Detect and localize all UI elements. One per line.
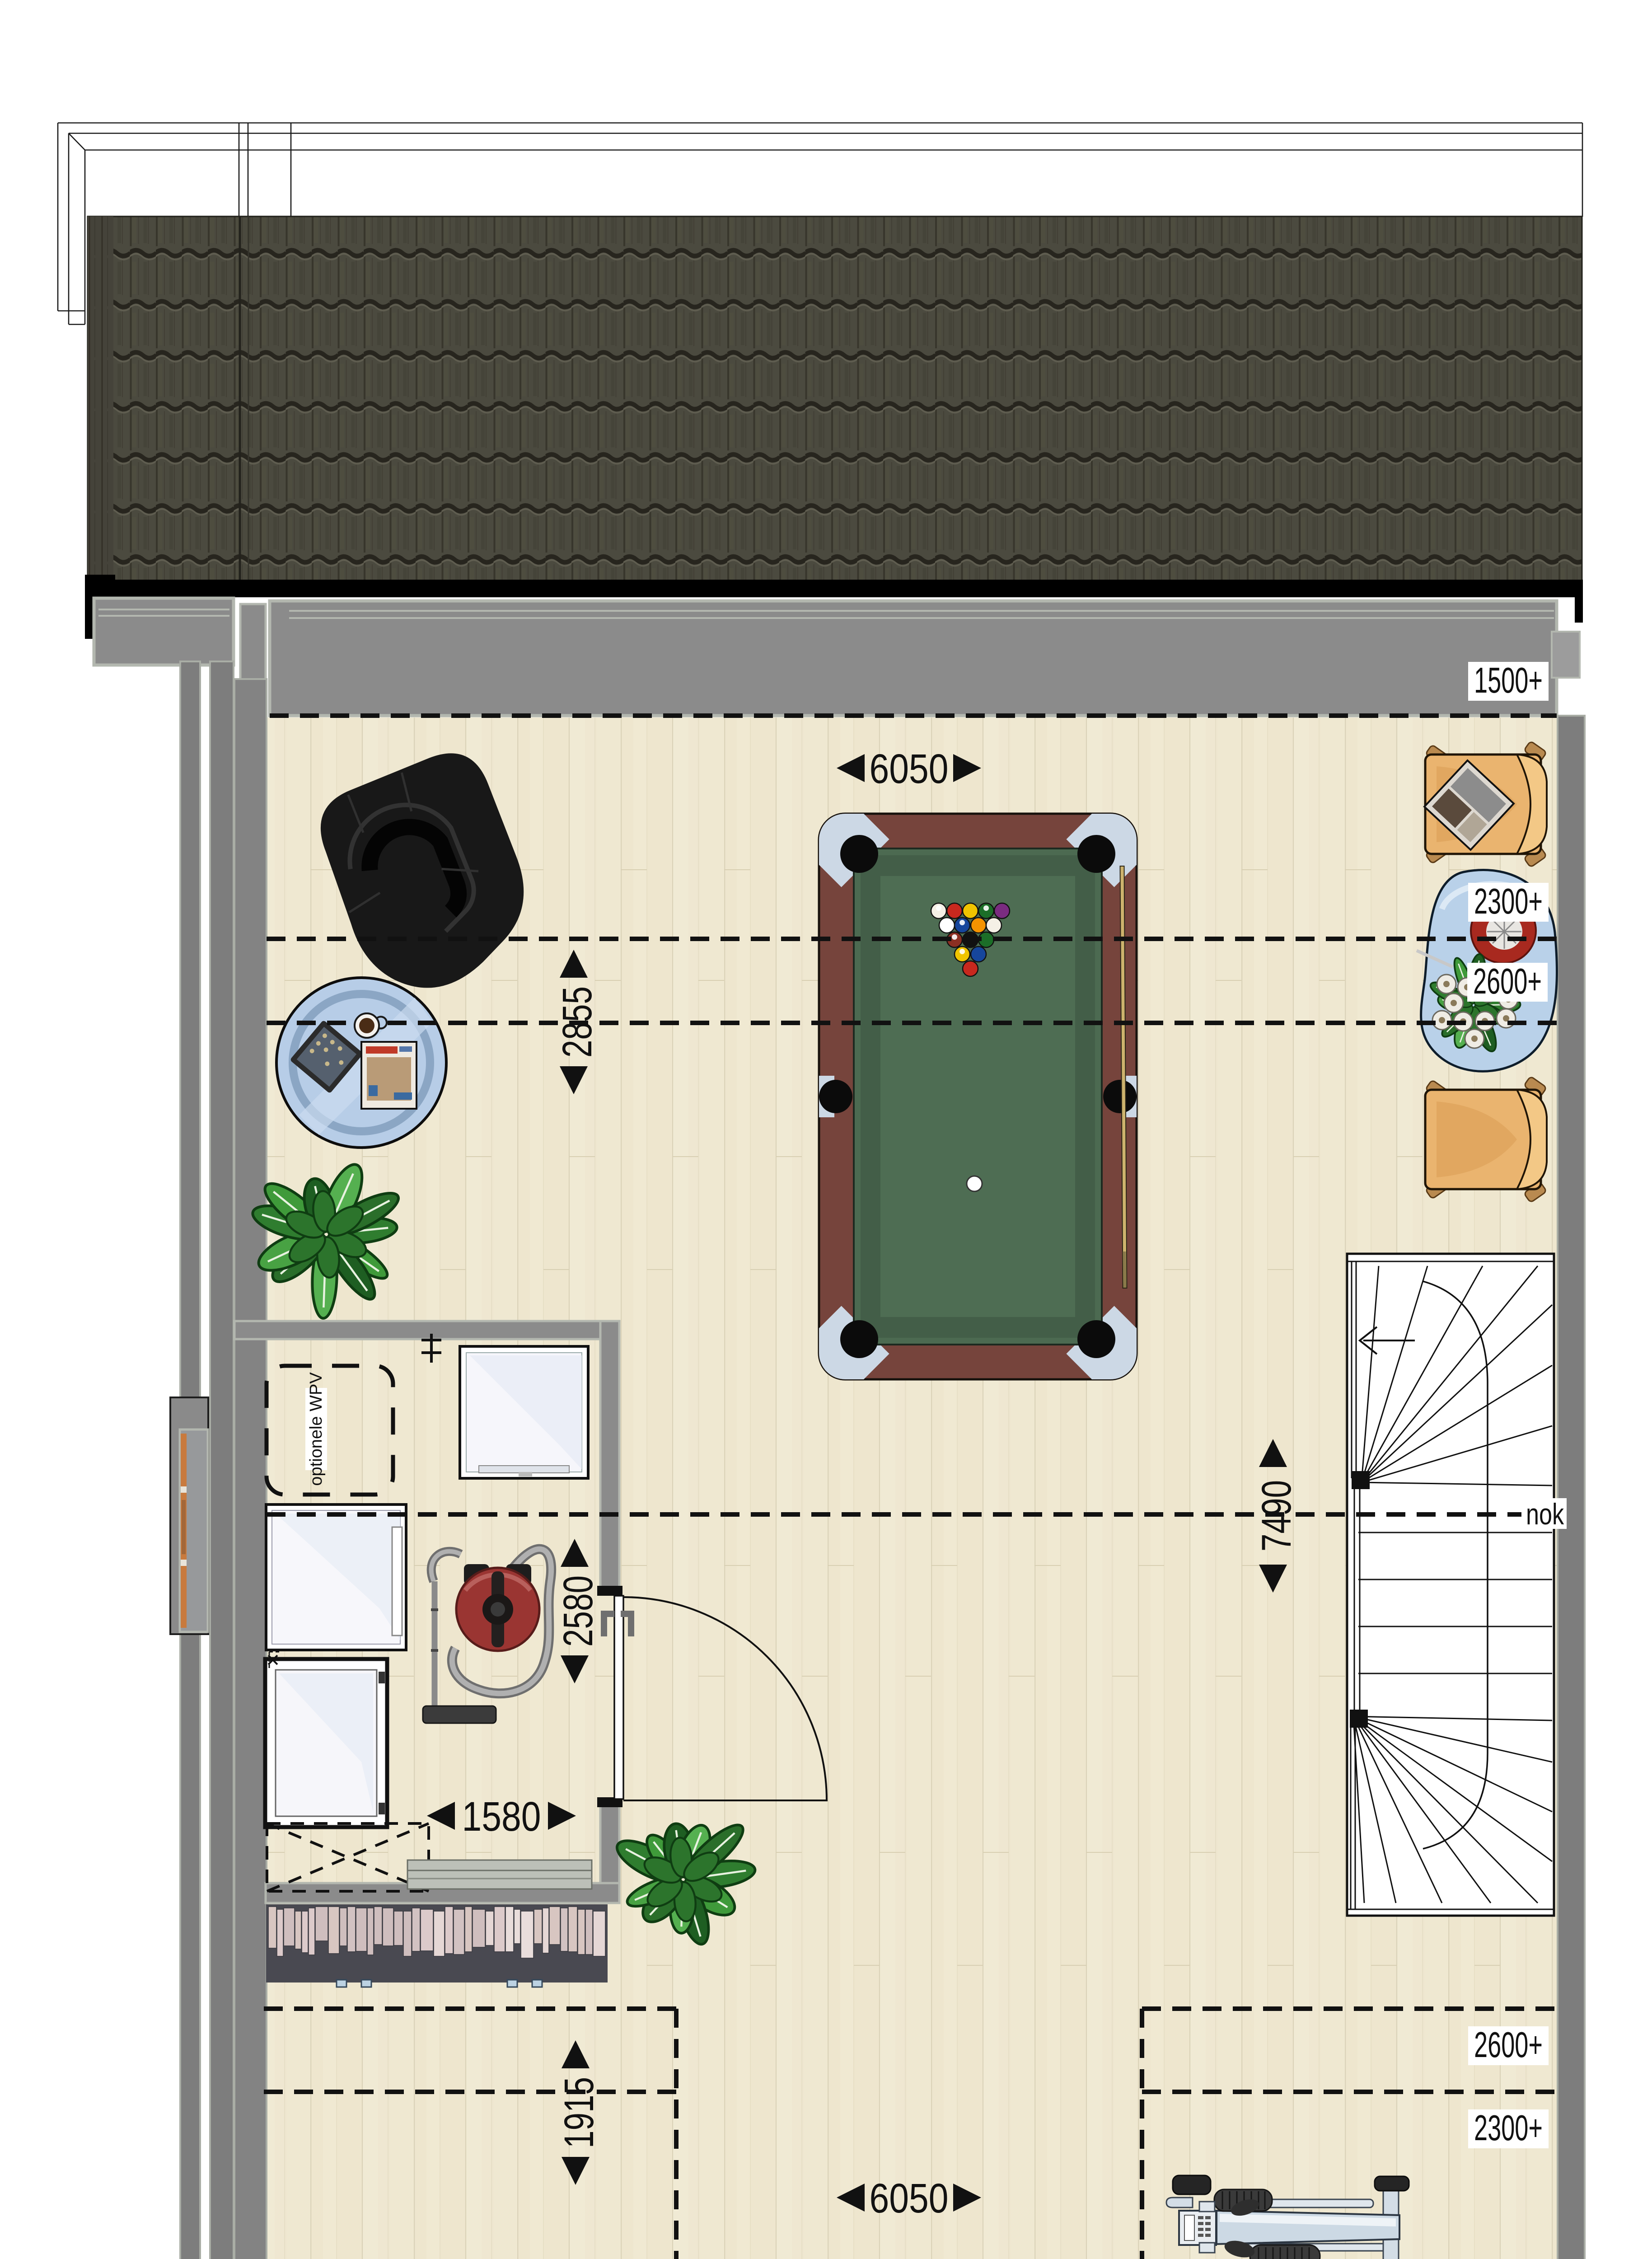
svg-text:2600+: 2600+ <box>1473 961 1542 1001</box>
svg-text:optionele WPV: optionele WPV <box>307 1372 326 1486</box>
svg-text:1915: 1915 <box>556 2077 602 2148</box>
svg-text:1580: 1580 <box>462 1794 541 1840</box>
svg-text:2600+: 2600+ <box>1474 2025 1543 2065</box>
svg-text:2580: 2580 <box>555 1575 601 1647</box>
svg-text:2300+: 2300+ <box>1474 881 1543 921</box>
svg-text:7490: 7490 <box>1254 1480 1300 1551</box>
svg-text:6050: 6050 <box>870 2175 949 2222</box>
svg-text:2855: 2855 <box>554 986 600 1058</box>
svg-text:2300+: 2300+ <box>1474 2108 1543 2148</box>
svg-text:6050: 6050 <box>870 746 949 792</box>
svg-text:nok: nok <box>1526 1497 1564 1531</box>
svg-text:1500+: 1500+ <box>1474 660 1543 700</box>
